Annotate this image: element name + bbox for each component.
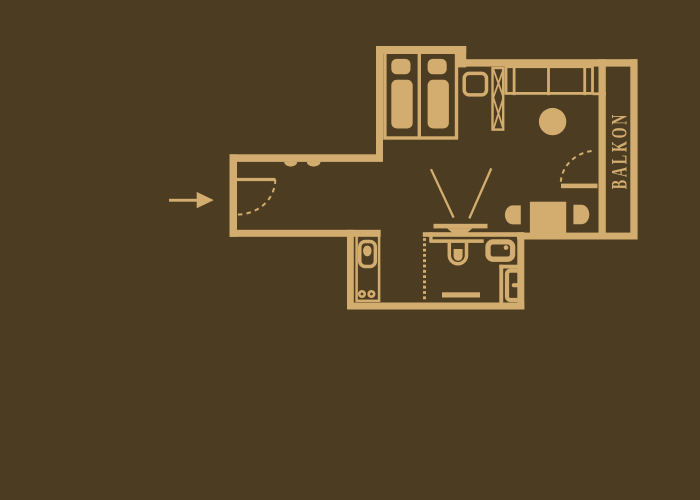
svg-text:BALKON: BALKON	[609, 112, 633, 189]
